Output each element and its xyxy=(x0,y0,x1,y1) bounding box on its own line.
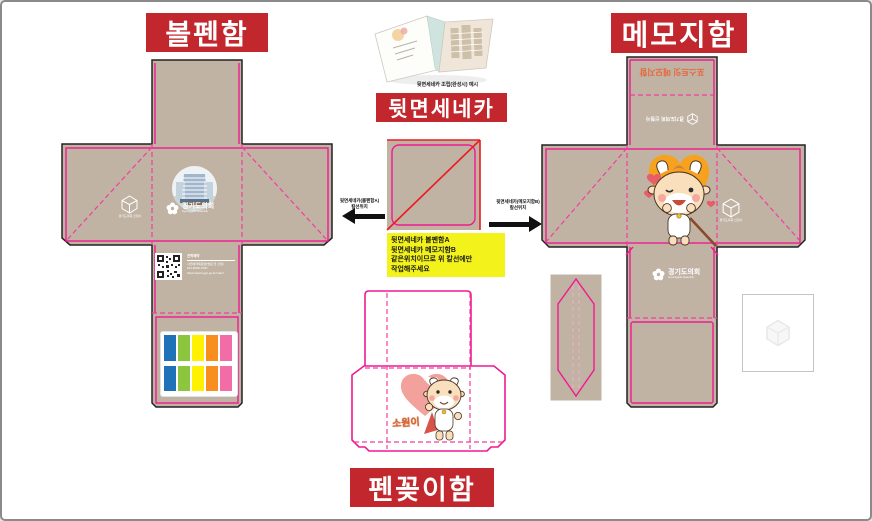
sticky-tab-yellow2 xyxy=(192,366,204,391)
assembly-name-en-memo: Gyeonggido Assembly xyxy=(668,276,700,280)
glue-flap-piece xyxy=(550,274,602,401)
note-line4: 작업해주세요 xyxy=(391,265,501,275)
seneca-diecut-square xyxy=(385,138,483,233)
note-line3: 같은위치이므로 위 칼선에만 xyxy=(391,255,501,265)
hexagon-logo-caption: 경기도의회 신청사 xyxy=(110,215,150,219)
blank-panel xyxy=(742,294,814,372)
title-ballpen-label: 볼펜함 xyxy=(165,13,248,53)
qr-line3: https://www.ggc.go.kr/main/ xyxy=(187,271,239,275)
qr-info-block: 견학예약 사전예약제운영(방문 전 신청) 031-8008-7000 http… xyxy=(187,254,239,275)
assembly-emblem-icon xyxy=(166,202,179,215)
mascot-penholder-illustration xyxy=(420,376,468,446)
instruction-note: 뒷면세네카 볼펜함A 뒷면세네카 메모지함B 같은위치이므로 위 칼선에만 작업… xyxy=(387,233,505,277)
assembly-emblem-icon-memo xyxy=(652,268,665,281)
sticky-tab-blue2 xyxy=(164,366,176,391)
note-line2: 뒷면세네카 메모지함B xyxy=(391,246,501,256)
sticky-tab-pink xyxy=(220,335,232,361)
right-arrow-body xyxy=(489,222,529,227)
sticky-tab-orange xyxy=(206,335,218,361)
assembly-logo: 경기도의회 Gyeonggido Assembly xyxy=(166,202,224,215)
qr-divider xyxy=(187,260,235,261)
hexagon-cube-logo-memo xyxy=(722,198,740,218)
title-ballpen-box: 볼펜함 xyxy=(146,13,268,52)
qr-code xyxy=(155,253,182,280)
hexagon-logo-caption-memo: 경기도의회 신청사 xyxy=(711,219,751,223)
left-arrow-label-line2: 칼선위치 xyxy=(331,204,388,210)
title-memo-label: 메모지함 xyxy=(622,12,737,54)
mascot-memo-illustration xyxy=(632,148,724,250)
memo-lid-flip-caption: 경기도의회 신청사 xyxy=(646,116,684,123)
title-penholder: 펜꽂이함 xyxy=(350,468,494,507)
sticky-tab-pink2 xyxy=(220,366,232,391)
title-seneca-label: 뒷면세네카 xyxy=(388,93,495,123)
hexagon-cube-logo xyxy=(121,195,138,214)
sticky-tab-yellow xyxy=(192,335,204,361)
sticky-tab-green xyxy=(178,335,190,361)
hexagon-cube-icon xyxy=(687,113,698,125)
qr-title: 견학예약 xyxy=(187,254,239,258)
mascot-name-label: 소원이 xyxy=(392,413,421,430)
assembly-name-en: Gyeonggido Assembly xyxy=(182,210,214,214)
left-arrow-label: 뒷면세네카(볼펜함A) 칼선위치 xyxy=(331,198,388,209)
assembly-logo-memo: 경기도의회 Gyeonggido Assembly xyxy=(652,268,710,281)
note-line1: 뒷면세네카 볼펜함A xyxy=(391,236,501,246)
left-arrow-body xyxy=(354,214,385,219)
example-caption: 뒷면세네카 조립(완성시) 예시 xyxy=(385,81,510,88)
sticky-tab-orange2 xyxy=(206,366,218,391)
memo-lid-flip-logo: 경기도의회 신청사 xyxy=(630,112,714,126)
title-seneca: 뒷면세네카 xyxy=(376,93,507,122)
title-memo-box: 메모지함 xyxy=(611,13,747,53)
sticky-tab-green2 xyxy=(178,366,190,391)
title-penholder-label: 펜꽂이함 xyxy=(368,468,475,507)
memo-lid-flip-text: 포스트잇 메모지함 xyxy=(630,62,714,78)
sticky-tab-blue xyxy=(164,335,176,361)
dieline-design-sheet: 볼펜함 메모지함 뒷면세네카 펜꽂이함 xyxy=(0,0,872,521)
assembled-box-photo xyxy=(365,10,505,88)
hexagon-cube-ghost-icon xyxy=(765,319,791,347)
